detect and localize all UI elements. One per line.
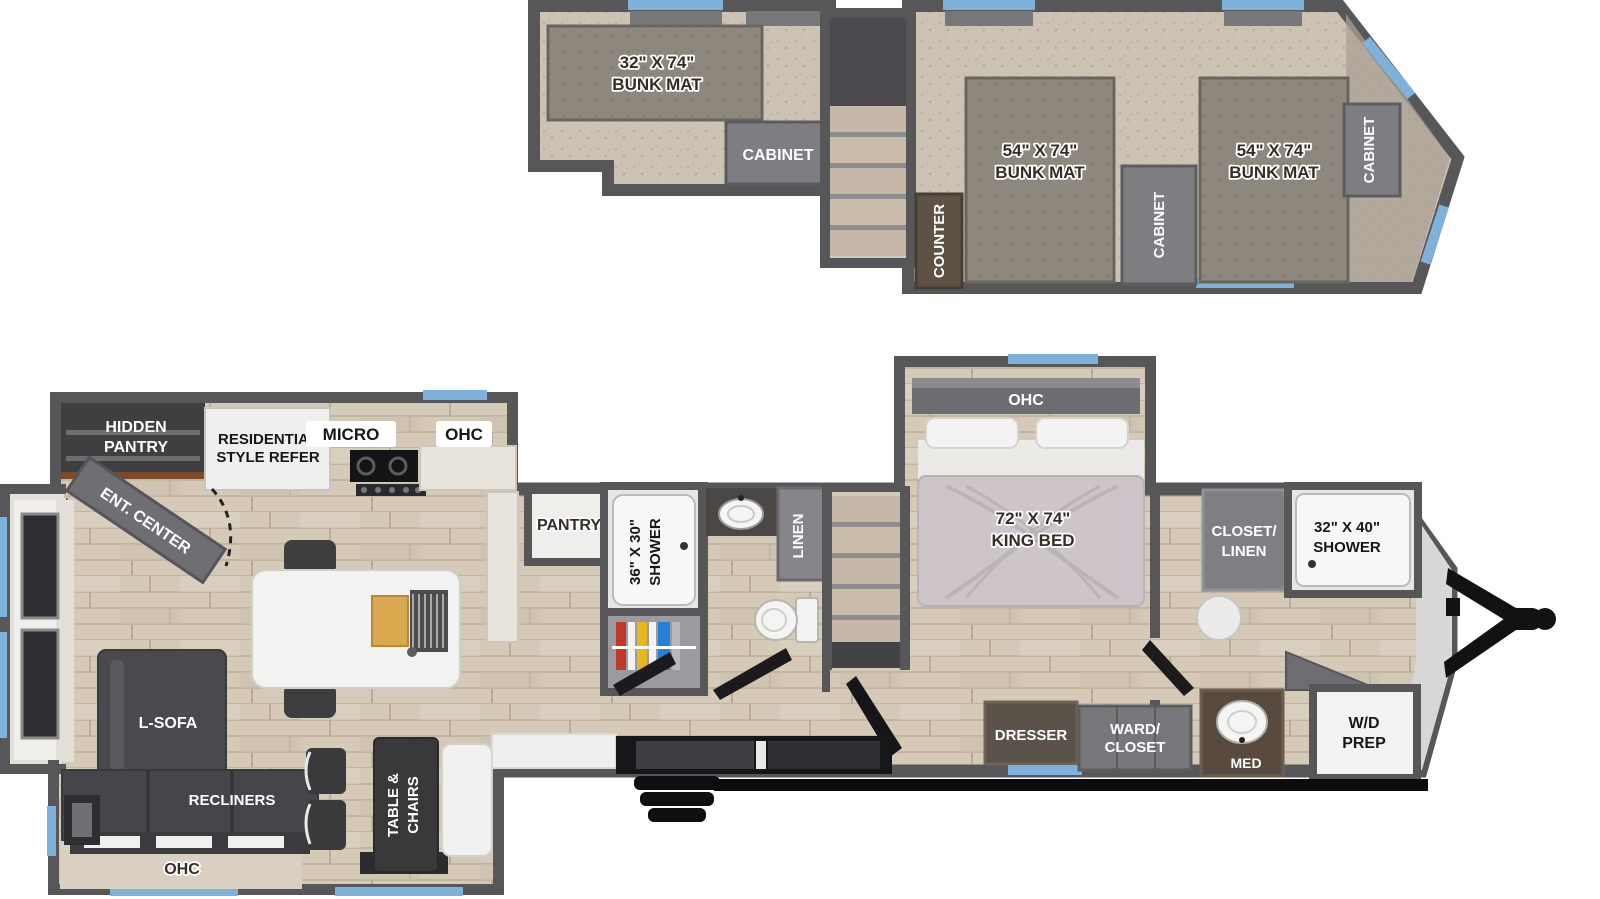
entry-steps	[634, 776, 720, 822]
ohc-bedroom-label: OHC	[1008, 392, 1044, 409]
dresser: DRESSER	[985, 702, 1077, 764]
refer-label2: STYLE REFER	[216, 449, 320, 466]
king-size-label: 72" X 74"	[996, 509, 1071, 528]
shower32-size-label: 32" X 40"	[1314, 519, 1380, 536]
frame-rail	[714, 779, 1428, 791]
wd-prep: W/D PREP	[1313, 688, 1417, 778]
range-cooktop	[350, 450, 426, 496]
loft-counter-label: COUNTER	[931, 204, 948, 278]
pillow-right	[1036, 418, 1128, 448]
loft-cabinet-front: CABINET	[1344, 104, 1400, 196]
rear-slide	[0, 484, 66, 774]
kitchen-counter-return	[487, 492, 518, 642]
door-swing	[1197, 596, 1241, 640]
dinette-chair-2	[306, 800, 346, 850]
linen-cabinet: LINEN	[778, 488, 824, 580]
bunk32-name-label: BUNK MAT	[612, 75, 702, 94]
kitchen-slide-window	[423, 390, 487, 400]
closet-linen-label1: CLOSET/	[1211, 523, 1277, 540]
loft-cabinet-rear-label: CABINET	[742, 147, 813, 164]
bedroom-slide-window	[1008, 354, 1098, 364]
rear-window-top	[22, 514, 58, 618]
loft-cabinet-rear: CABINET	[726, 122, 830, 184]
dresser-label: DRESSER	[995, 727, 1068, 744]
ward-label2: CLOSET	[1105, 739, 1166, 756]
closet-linen: CLOSET/ LINEN	[1203, 490, 1285, 590]
bunk54b-size-label: 54" X 74"	[1237, 141, 1312, 160]
bunk32-size-label: 32" X 74"	[620, 53, 695, 72]
recliners: RECLINERS	[62, 770, 318, 854]
ward-label1: WARD/	[1110, 721, 1161, 738]
hitch	[1444, 568, 1556, 678]
micro-label: MICRO	[323, 425, 380, 444]
wd-label2: PREP	[1342, 735, 1386, 752]
rear-window-bottom	[22, 630, 58, 738]
bunk54a-size-label: 54" X 74"	[1003, 141, 1078, 160]
shower-32x40: 32" X 40" SHOWER	[1288, 486, 1418, 594]
closet-linen-label2: LINEN	[1222, 543, 1267, 560]
shower36-size-label: 36" X 30"	[627, 519, 644, 585]
refer-label1: RESIDENTIAL	[218, 431, 318, 448]
wardrobe-closet-hanging	[604, 612, 704, 692]
entry-door	[616, 736, 892, 774]
bedroom-window	[1008, 765, 1082, 775]
entry-bench	[492, 734, 616, 768]
main-floorplan: HIDDEN PANTRY RESIDENTIAL STYLE REFER MI…	[0, 354, 1556, 896]
hidden-pantry-label1: HIDDEN	[105, 419, 166, 436]
med-label: MED	[1230, 755, 1261, 771]
hidden-pantry-label2: PANTRY	[104, 439, 168, 456]
pantry-closet: PANTRY	[528, 490, 610, 562]
bunk-mat-32x74: 32" X 74" BUNK MAT	[548, 26, 762, 120]
wardrobe-closet: WARD/ CLOSET	[1079, 706, 1191, 770]
bunk54b-name-label: BUNK MAT	[1229, 163, 1319, 182]
shower32-name-label: SHOWER	[1313, 539, 1381, 556]
bunk54a-name-label: BUNK MAT	[995, 163, 1085, 182]
dinette-chair-1	[306, 748, 346, 794]
toilet	[755, 598, 818, 642]
floorplan-svg: 32" X 74" BUNK MAT CABINET COUNTER 54" X…	[0, 0, 1600, 899]
residential-refrigerator: RESIDENTIAL STYLE REFER	[205, 408, 330, 490]
bunk-mat-54x74-right: 54" X 74" BUNK MAT	[1200, 78, 1348, 282]
l-sofa: L-SOFA	[98, 650, 226, 778]
bunk-mat-54x74-left: 54" X 74" BUNK MAT	[966, 78, 1114, 282]
loft-floorplan: 32" X 74" BUNK MAT CABINET COUNTER 54" X…	[534, 0, 1458, 288]
recliners-label: RECLINERS	[189, 792, 276, 809]
cutting-board	[372, 596, 408, 646]
ohc-living-label: OHC	[164, 861, 200, 878]
wd-label1: W/D	[1348, 715, 1379, 732]
table-label1: TABLE &	[385, 773, 402, 837]
loft-cabinet-mid: CABINET	[1122, 166, 1196, 284]
loft-counter: COUNTER	[916, 194, 962, 288]
floorplan-page: 32" X 74" BUNK MAT CABINET COUNTER 54" X…	[0, 0, 1600, 899]
pillow-left	[926, 418, 1018, 448]
pantry-label: PANTRY	[537, 517, 601, 534]
l-sofa-label: L-SOFA	[139, 715, 198, 732]
microwave: MICRO	[306, 421, 396, 447]
shower36-name-label: SHOWER	[647, 518, 664, 586]
linen-label: LINEN	[790, 514, 807, 559]
island-faucet	[407, 647, 417, 657]
bath-sink-counter	[702, 488, 780, 536]
ohc-kitchen-label: OHC	[445, 425, 483, 444]
dinette-bench	[442, 744, 492, 856]
loft-cabinet-mid-label: CABINET	[1151, 192, 1168, 259]
shower-36x30: 36" X 30" SHOWER	[604, 486, 704, 614]
loft-staircase	[820, 8, 916, 268]
vanity-med: MED	[1201, 690, 1283, 776]
king-name-label: KING BED	[991, 531, 1074, 550]
king-bed: 72" X 74" KING BED	[918, 476, 1144, 606]
loft-cabinet-front-label: CABINET	[1361, 117, 1378, 184]
table-label2: CHAIRS	[405, 776, 422, 834]
